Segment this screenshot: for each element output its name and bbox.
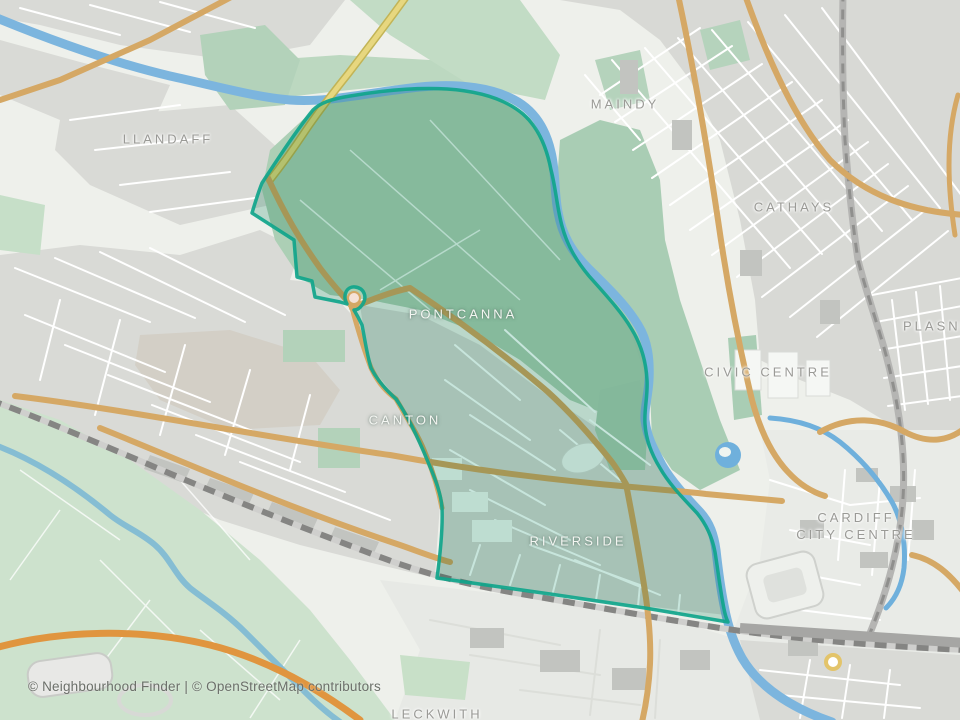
pond-island bbox=[719, 447, 731, 457]
map-canvas[interactable] bbox=[0, 0, 960, 720]
map-attribution: © Neighbourhood Finder | © OpenStreetMap… bbox=[28, 679, 381, 694]
roundabout bbox=[826, 655, 840, 669]
map-viewport[interactable]: LLANDAFF MAINDY CATHAYS PLASNEWYDD CIVIC… bbox=[0, 0, 960, 720]
llandaff-fields-roundabout bbox=[348, 292, 360, 304]
